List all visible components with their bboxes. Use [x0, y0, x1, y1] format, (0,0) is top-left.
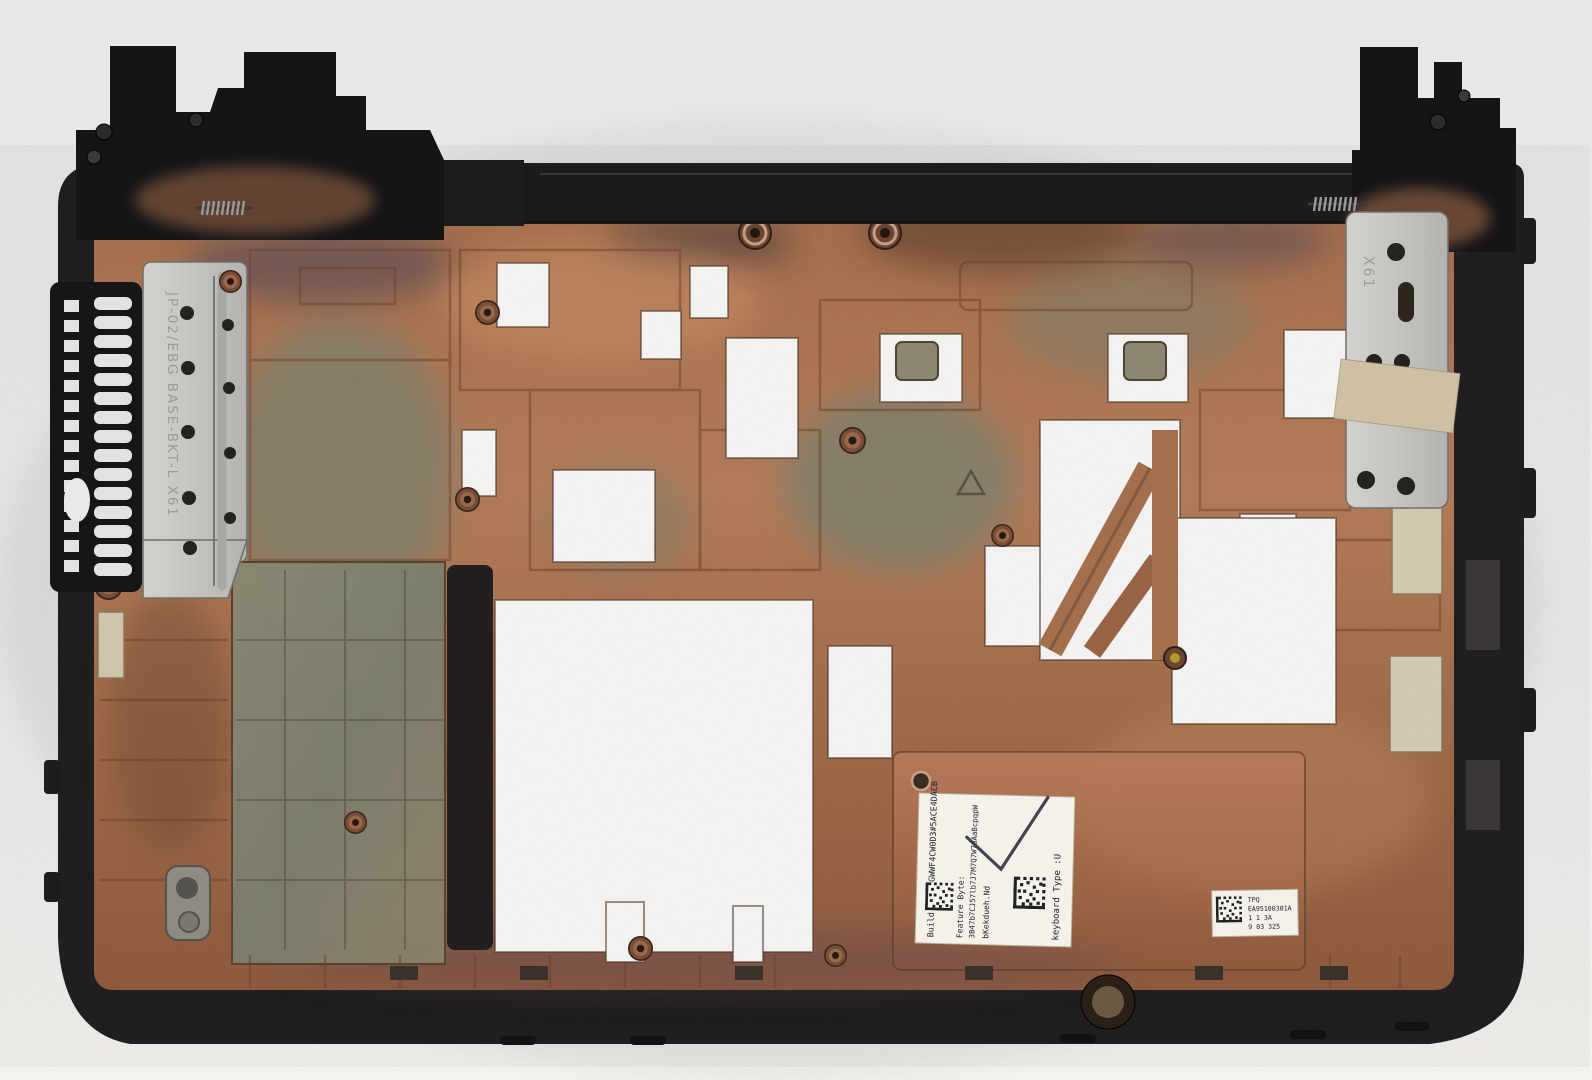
service-label-feature-byte-title: Feature Byte: [955, 875, 966, 938]
service-label-datamatrix-1 [925, 882, 954, 911]
part-label-line3: 1 1 3A [1248, 914, 1272, 922]
part-label-line2: EA95100301A [1248, 904, 1292, 913]
part-number-label: TPQ EA95100301A 1 1 3A 9 03 325 [1212, 889, 1299, 936]
top-rim-bar [444, 160, 1454, 226]
bottom-round-hole-inner [1092, 986, 1124, 1018]
left-bracket-etched-text: JP-02/EBG BASE-BKT-L X61 [164, 291, 180, 518]
base-bracket-right: X61 [1334, 212, 1460, 508]
part-label-line1: TPQ [1248, 896, 1260, 904]
photo-stage: JP-02/EBG BASE-BKT-L X61 X61 Build ID: 1… [0, 0, 1592, 1080]
service-label-config-code: bKekdueh.Nd [981, 886, 991, 939]
base-bracket-left: JP-02/EBG BASE-BKT-L X61 [143, 262, 247, 598]
laptop-bottom-case-photo: JP-02/EBG BASE-BKT-L X61 X61 Build ID: 1… [0, 0, 1592, 1080]
part-label-line4: 9 03 325 [1248, 923, 1280, 932]
part-label-datamatrix [1216, 896, 1242, 922]
bracket-screw [220, 271, 241, 292]
vent-grille [50, 282, 142, 592]
keyboard-plate: Build ID: 1GWWF4CW0D3#5ACE4DACB Feature … [893, 752, 1305, 970]
corner-latch-piece [166, 866, 210, 940]
left-rim-oval-hole [64, 478, 90, 522]
right-rim-slot [1466, 760, 1500, 830]
service-label-datamatrix-2 [1013, 876, 1046, 909]
service-label: Build ID: 1GWWF4CW0D3#5ACE4DACB Feature … [915, 781, 1075, 947]
right-rim-slot [1466, 560, 1500, 650]
right-bracket-etched-text: X61 [1360, 256, 1376, 289]
